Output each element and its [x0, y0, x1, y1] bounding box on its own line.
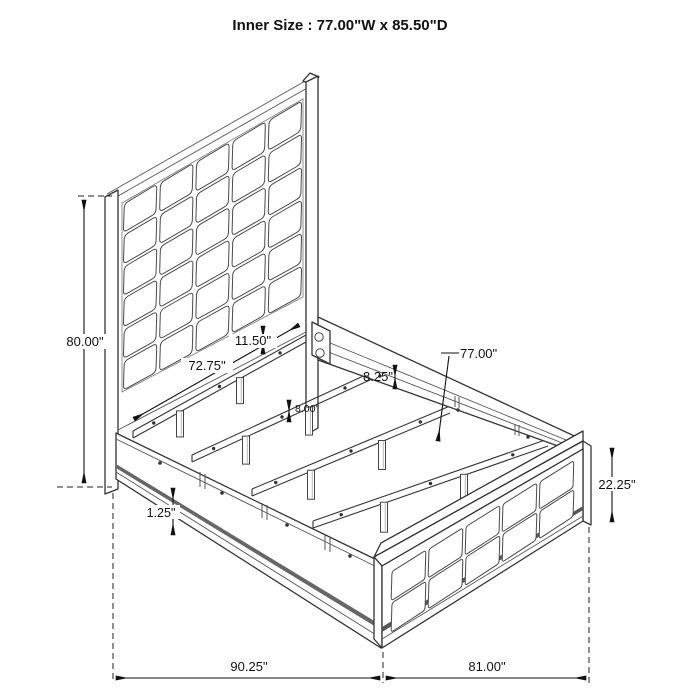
- screw-dot: [349, 449, 352, 452]
- dimension-label-footboard-height: 22.25": [598, 477, 636, 492]
- screw-dot: [278, 351, 281, 354]
- screw-dot: [526, 435, 529, 438]
- screw-dot: [340, 513, 343, 516]
- screw-dot: [419, 420, 422, 423]
- screw-dot: [220, 491, 224, 495]
- screw-dot: [285, 523, 289, 527]
- screw-dot: [152, 421, 155, 424]
- slat-support-leg: [379, 441, 386, 470]
- screw-dot: [348, 554, 352, 558]
- dimension-label-rail-trim: 1.25": [147, 506, 176, 520]
- diagram-canvas: 80.00" 72.75" 11.50" 8.25" 8.00" 77.00" …: [0, 0, 700, 700]
- bed-slat-top-edge: [192, 372, 372, 455]
- headboard: [105, 73, 319, 494]
- screw-dot: [218, 385, 221, 388]
- back-rail-ledge-line-2: [318, 348, 583, 451]
- footboard-left-end-cap: [374, 557, 382, 648]
- footboard: [374, 431, 591, 648]
- front-side-rail: [116, 433, 381, 648]
- screw-dot: [280, 415, 283, 418]
- dimension-label-rail-height: 8.25": [363, 369, 393, 384]
- dimension-label-overall-width: 81.00": [468, 659, 506, 674]
- slat-support-leg: [237, 378, 244, 404]
- dimension-label-headboard-width: 72.75": [188, 358, 226, 373]
- dimension-label-inner-width: 77.00": [460, 346, 498, 361]
- footboard-right-end-cap: [583, 441, 591, 525]
- screw-dot: [511, 453, 514, 456]
- screw-dot: [158, 461, 162, 465]
- diagram-title: Inner Size : 77.00"W x 85.50"D: [232, 17, 447, 34]
- bed-dimension-diagram: 80.00" 72.75" 11.50" 8.25" 8.00" 77.00" …: [0, 0, 700, 700]
- dimension-label-overall-length: 90.25": [230, 659, 268, 674]
- dimension-label-panel-gap: 11.50": [235, 333, 272, 348]
- slat-support-leg: [243, 436, 250, 464]
- screw-dot: [429, 482, 432, 485]
- front-rail-face: [116, 433, 381, 648]
- headboard-right-post: [306, 76, 318, 435]
- back-side-rail: [312, 317, 583, 455]
- screw-dot: [456, 408, 459, 411]
- dimension-label-headboard-height: 80.00": [66, 334, 104, 349]
- screw-dot: [343, 386, 346, 389]
- slat-support-leg: [177, 411, 184, 437]
- bracket-bolt-hole-top: [315, 333, 323, 341]
- screw-dot: [212, 447, 215, 450]
- dimension-label-leg-height: 8.00": [295, 403, 319, 415]
- slat-support-leg: [308, 470, 315, 499]
- bracket-bolt-hole-bottom: [316, 349, 324, 357]
- slat-support-leg: [381, 502, 388, 532]
- screw-dot: [274, 481, 277, 484]
- back-rail-ledge-line-1: [318, 338, 583, 447]
